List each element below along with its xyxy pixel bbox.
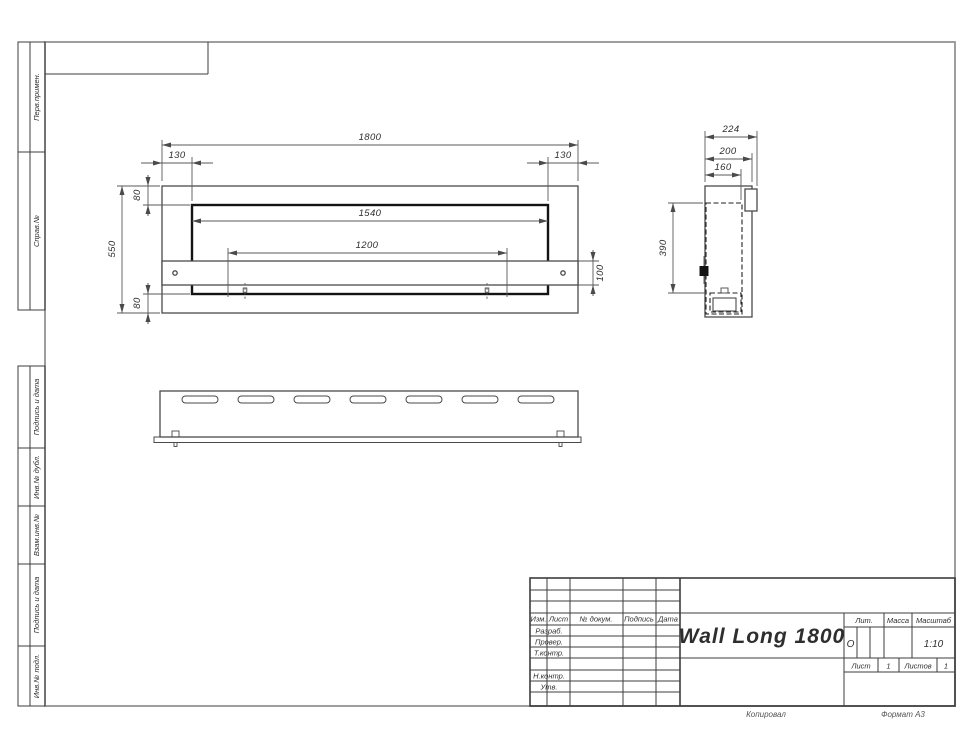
tb-sheets-value: 1 [944,662,948,671]
dim-100: 100 [578,250,606,296]
dim-80-top: 80 [117,175,190,216]
drawing-sheet: Перв.примен. Справ.№ Подпись и дата Инв.… [0,0,970,749]
tb-row-razrab: Разраб. [535,627,562,636]
side-wall-bracket [745,189,757,211]
dim-130-left: 130 [141,150,213,201]
side-view: 224 200 160 390 [658,124,757,317]
tb-row-tkontr: Т.контр. [534,649,564,658]
tb-col-doc-no: № докум. [579,615,612,624]
bottom-vent-slots [182,396,554,403]
dim-130-right: 130 [527,150,599,201]
title-block: Изм. Лист № докум. Подпись Дата Разраб. … [530,578,955,706]
footer-format-label: Формат А3 [881,710,925,719]
dim-text-1540: 1540 [359,208,382,219]
bottom-body [160,391,578,437]
margin-label-podpis-data-2: Подпись и дата [32,577,41,634]
tb-mass-label: Масса [887,616,909,625]
sheet-footer: Копировал Формат А3 [746,710,925,719]
front-view: 1800 130 130 80 550 [107,132,606,324]
margin-label-podpis-data-1: Подпись и дата [32,379,41,436]
dim-text-160: 160 [714,162,731,173]
bottom-rail [154,437,581,443]
dim-text-130-right: 130 [554,150,571,161]
dim-1540: 1540 [192,208,548,221]
margin-label-inv-podl: Инв.№ подл. [32,654,41,698]
dim-390: 390 [658,203,707,293]
tb-scale-value: 1:10 [924,639,944,650]
dim-80-bottom: 80 [132,283,190,324]
dim-text-1800: 1800 [359,132,382,143]
tb-row-nkontr: Н.контр. [533,672,565,681]
left-margin-strips: Перв.примен. Справ.№ Подпись и дата Инв.… [18,42,45,706]
dim-text-80-top: 80 [132,189,143,201]
tb-scale-label: Масштаб [916,616,952,625]
dim-text-80-bottom: 80 [132,297,143,309]
margin-label-sprav-no: Справ.№ [32,215,41,247]
tb-sheet-label: Лист [850,662,870,671]
tb-col-izm: Изм. [531,615,547,624]
tb-row-utv: Утв. [539,683,557,692]
dim-text-224: 224 [721,124,739,135]
dim-text-1200: 1200 [356,240,379,251]
dim-text-550: 550 [107,240,118,257]
dim-text-390: 390 [658,239,669,256]
tb-lit-label: Лит. [854,616,873,625]
tb-sheet-value: 1 [886,662,890,671]
front-mount-bar [162,261,578,285]
margin-top-block: Перв.примен. Справ.№ [18,42,45,310]
margin-bottom-block: Подпись и дата Инв.№ дубл. Взам.инв.№ По… [18,366,45,706]
dim-text-100: 100 [595,264,606,281]
margin-label-inv-dubl: Инв.№ дубл. [32,455,41,499]
bottom-hanger-right [557,431,564,447]
tb-col-list: Лист [548,615,568,624]
tb-doc-name: Wall Long 1800 [679,625,846,648]
dim-text-130-left: 130 [168,150,185,161]
tb-sheets-label: Листов [903,662,931,671]
drawing-canvas: Перв.примен. Справ.№ Подпись и дата Инв.… [0,0,970,749]
margin-label-perv-primen: Перв.примен. [32,73,41,121]
tb-row-prover: Провер. [535,638,563,647]
dim-text-200: 200 [718,146,736,157]
bottom-view [154,391,581,447]
sheet-frame [45,42,955,706]
top-left-reference-box [45,42,208,74]
tb-lit-value: О [847,639,855,650]
footer-copied-label: Копировал [746,710,786,719]
margin-label-vzam-inv: Взам.инв.№ [32,514,41,556]
inner-frame [45,42,955,706]
tb-col-podpis: Подпись [624,615,654,624]
bottom-hanger-left [172,431,179,447]
tb-col-data: Дата [657,615,678,624]
dim-1800: 1800 [162,132,578,181]
